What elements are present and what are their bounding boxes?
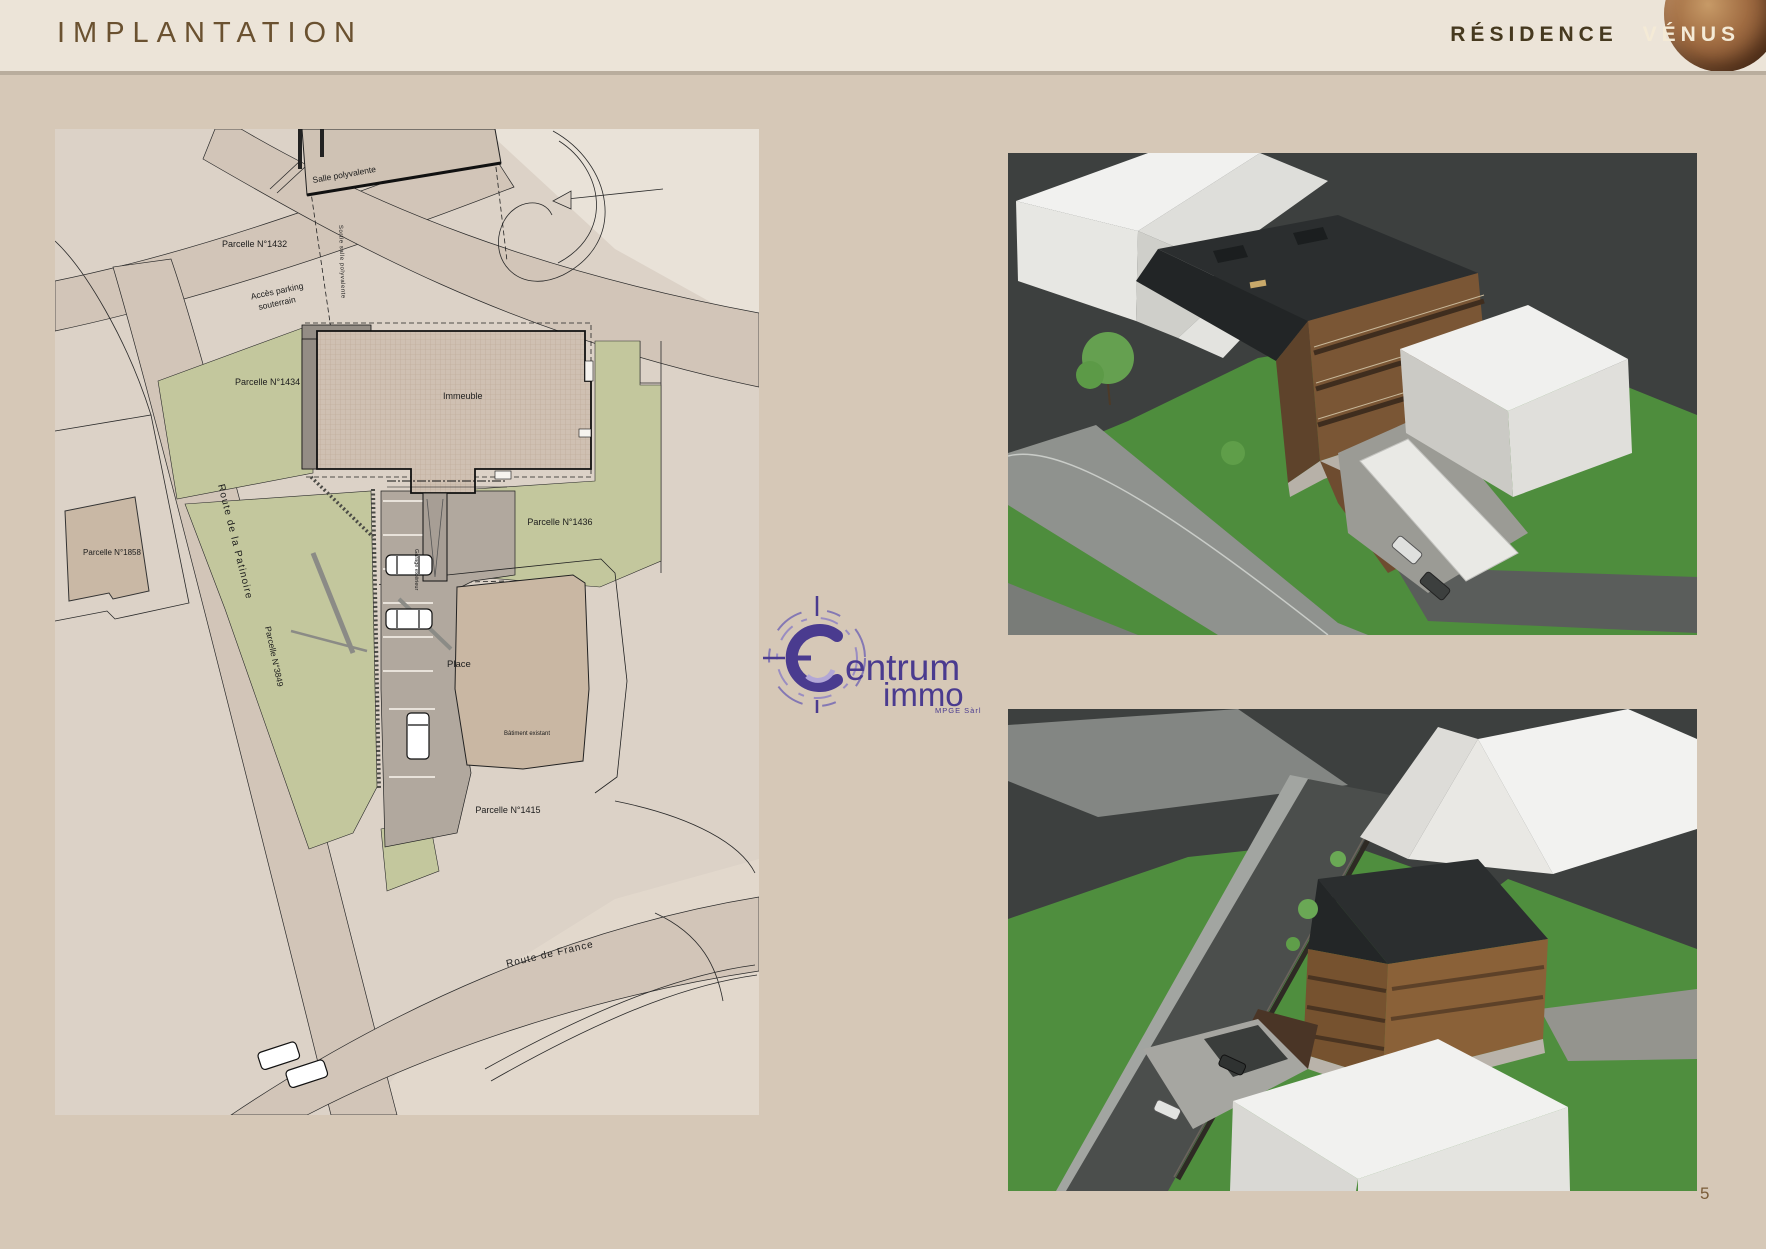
centrum-immo-logo: entrum immo MPGE Sàrl: [745, 594, 990, 714]
label-batiment-existant: Bâtiment existant: [504, 731, 550, 737]
logo-subtitle: MPGE Sàrl: [935, 706, 982, 714]
site-plan-drawing: Salle polyvalente Parcelle N°1432 Accès …: [55, 129, 759, 1115]
label-garage-exterieur: Garage extérieur: [413, 549, 419, 590]
brand: RÉSIDENCE VÉNUS: [1450, 23, 1740, 47]
label-place: Place: [447, 659, 471, 670]
car-icon: [386, 609, 432, 629]
page-title: IMPLANTATION: [57, 17, 363, 50]
page-number: 5: [1700, 1184, 1709, 1204]
render-aerial-top: [1008, 153, 1697, 635]
label-parcelle-1436: Parcelle N°1436: [527, 517, 592, 527]
brand-residence: RÉSIDENCE: [1450, 23, 1618, 46]
label-immeuble: Immeuble: [443, 391, 483, 401]
van-icon: [407, 713, 429, 759]
brand-name: VÉNUS: [1643, 23, 1740, 46]
label-parcelle-1434: Parcelle N°1434: [235, 377, 300, 387]
render-aerial-bottom: [1008, 709, 1697, 1191]
label-parcelle-1415: Parcelle N°1415: [475, 805, 540, 815]
site-plan: Salle polyvalente Parcelle N°1432 Accès …: [55, 129, 759, 1115]
label-parcelle-1858: Parcelle N°1858: [83, 548, 141, 557]
brochure-page: RÉSIDENCE VÉNUS IMPLANTATION: [0, 0, 1766, 1249]
label-parcelle-1432: Parcelle N°1432: [222, 239, 287, 249]
car-icon: [386, 555, 432, 575]
